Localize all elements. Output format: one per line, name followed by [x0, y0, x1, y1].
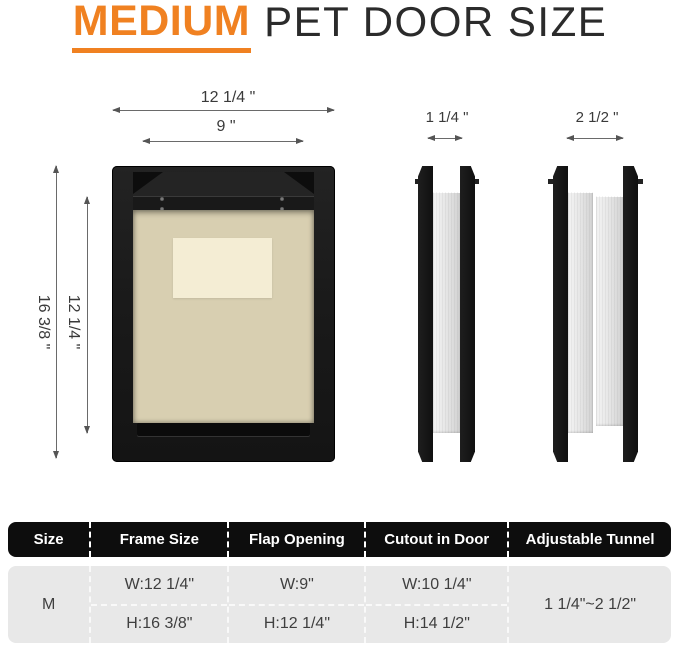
- flap-label-patch: [173, 238, 272, 298]
- side-frame-bar: [553, 166, 568, 462]
- arrow-down-icon: [84, 426, 90, 434]
- header-cell-size: Size: [8, 522, 89, 557]
- dim-front-outer-width-line: [113, 110, 334, 111]
- mount-tab-icon: [548, 179, 553, 184]
- cell-frame-size-width: W:12 1/4": [91, 566, 227, 606]
- tunnel-panel: [568, 192, 593, 433]
- header-cell-adjustable-tunnel: Adjustable Tunnel: [507, 522, 671, 557]
- arrow-down-icon: [53, 451, 59, 459]
- front-view: [112, 166, 335, 462]
- spec-table-row-m: M W:12 1/4" H:16 3/8" W:9" H:12 1/4" W:1…: [8, 566, 671, 643]
- arrow-left-icon: [142, 138, 150, 144]
- cell-flap-opening: W:9" H:12 1/4": [227, 566, 364, 643]
- dim-tunnel-max-label: 2 1/2 ": [576, 109, 619, 126]
- side-view-max-depth: [548, 166, 643, 462]
- side-frame-bar: [623, 166, 638, 462]
- screw-icon: [280, 197, 284, 201]
- side-view-min-depth: [415, 166, 479, 462]
- tunnel-panel: [596, 196, 623, 426]
- dim-tunnel-min-line: [428, 138, 462, 139]
- dim-tunnel-max-line: [567, 138, 623, 139]
- page-title: MEDIUM PET DOOR SIZE: [0, 2, 679, 53]
- header-cell-frame-size: Frame Size: [89, 522, 227, 557]
- arrow-left-icon: [427, 135, 435, 141]
- arrow-left-icon: [112, 107, 120, 113]
- cell-flap-opening-height: H:12 1/4": [229, 606, 364, 644]
- pet-door-size-diagram: MEDIUM PET DOOR SIZE 12 1/4 " 9 " 16 3/8…: [0, 0, 679, 646]
- arrow-right-icon: [455, 135, 463, 141]
- corner-gusset-icon: [133, 172, 163, 194]
- dim-front-inner-width-line: [143, 141, 303, 142]
- dim-front-outer-height-line: [56, 166, 57, 458]
- dim-front-inner-height-line: [87, 197, 88, 433]
- dim-front-outer-width-label: 12 1/4 ": [201, 89, 256, 107]
- corner-gusset-icon: [284, 172, 314, 194]
- header-cell-flap-opening: Flap Opening: [227, 522, 364, 557]
- spec-table-header: Size Frame Size Flap Opening Cutout in D…: [8, 522, 671, 557]
- dim-tunnel-min-label: 1 1/4 ": [426, 109, 469, 126]
- title-rest: PET DOOR SIZE: [264, 2, 607, 42]
- cell-cutout-width: W:10 1/4": [366, 566, 507, 606]
- arrow-up-icon: [84, 196, 90, 204]
- door-flap: [133, 210, 314, 423]
- screw-icon: [160, 197, 164, 201]
- arrow-right-icon: [296, 138, 304, 144]
- side-frame-bar: [418, 166, 433, 462]
- cell-size: M: [8, 566, 89, 643]
- cell-frame-size: W:12 1/4" H:16 3/8": [89, 566, 227, 643]
- mount-tab-icon: [638, 179, 643, 184]
- cell-adjustable-tunnel: 1 1/4"~2 1/2": [507, 566, 671, 643]
- arrow-up-icon: [53, 165, 59, 173]
- cell-cutout-in-door: W:10 1/4" H:14 1/2": [364, 566, 507, 643]
- header-cell-cutout-in-door: Cutout in Door: [364, 522, 507, 557]
- tunnel-panel: [433, 192, 460, 433]
- dim-front-outer-height-label: 16 3/8 ": [34, 295, 52, 350]
- dim-front-inner-width-label: 9 ": [216, 118, 235, 136]
- bottom-slot: [137, 423, 310, 436]
- cell-cutout-height: H:14 1/2": [366, 606, 507, 644]
- title-size-word: MEDIUM: [72, 2, 251, 53]
- arrow-right-icon: [327, 107, 335, 113]
- cell-frame-size-height: H:16 3/8": [91, 606, 227, 644]
- side-frame-bar: [460, 166, 475, 462]
- arrow-left-icon: [566, 135, 574, 141]
- arrow-right-icon: [616, 135, 624, 141]
- dim-front-inner-height-label: 12 1/4 ": [64, 295, 82, 350]
- cell-flap-opening-width: W:9": [229, 566, 364, 606]
